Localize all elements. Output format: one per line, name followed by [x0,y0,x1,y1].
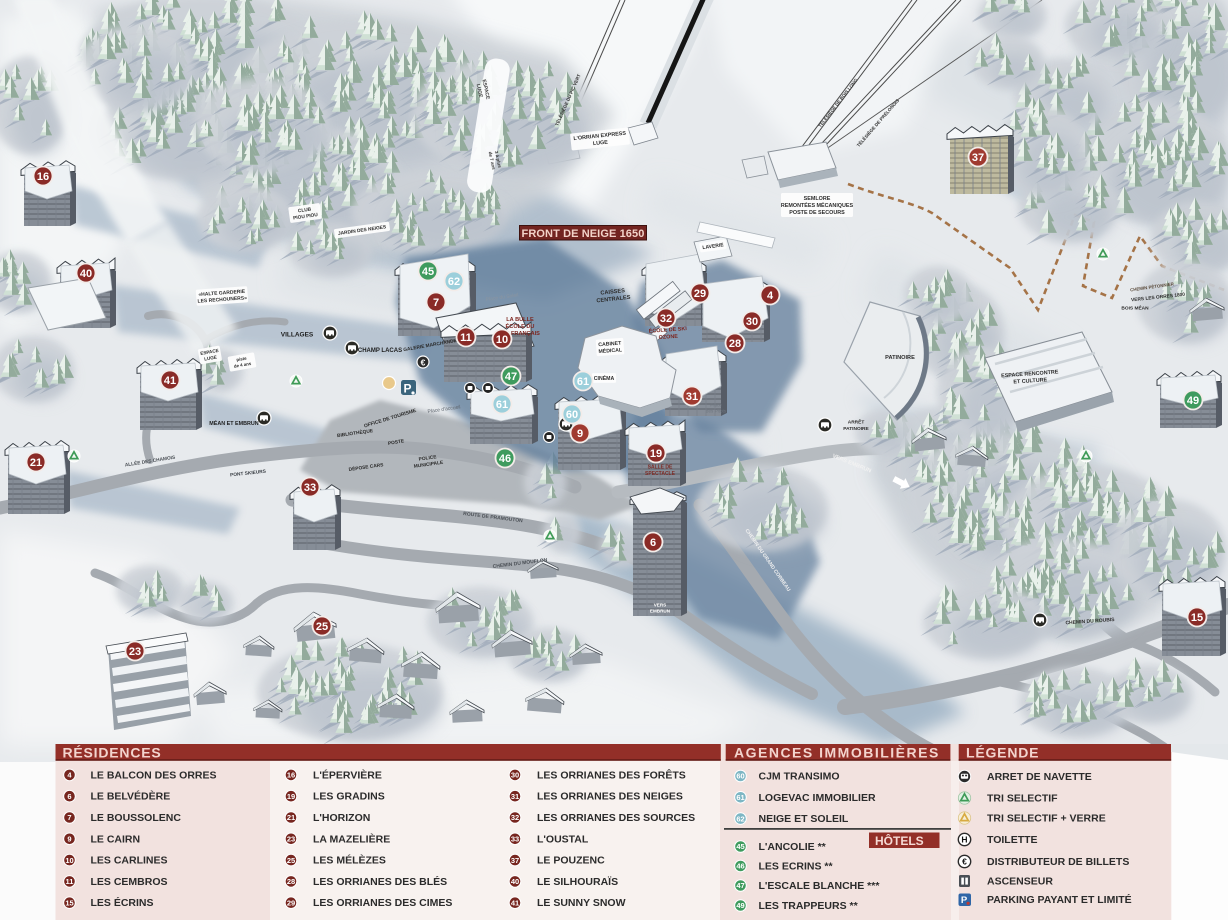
svg-text:REMONTÉES MÉCANIQUES: REMONTÉES MÉCANIQUES [781,201,854,209]
svg-text:P: P [961,895,968,906]
svg-text:30: 30 [511,771,519,780]
svg-text:ASCENSEUR: ASCENSEUR [987,876,1053,888]
svg-text:L'ESCALE BLANCHE ***: L'ESCALE BLANCHE *** [759,880,881,892]
svg-text:61: 61 [577,376,589,388]
svg-text:60: 60 [736,772,744,781]
svg-text:4: 4 [767,290,774,302]
svg-text:LA BULLE: LA BULLE [506,317,534,323]
svg-text:25: 25 [316,621,328,633]
svg-text:LE SUNNY SNOW: LE SUNNY SNOW [537,897,626,909]
svg-text:19: 19 [287,792,295,801]
svg-text:9: 9 [67,835,71,844]
svg-text:LE BOUSSOLENC: LE BOUSSOLENC [91,812,182,824]
svg-text:SPECTACLE: SPECTACLE [645,471,676,477]
svg-text:60: 60 [566,409,578,421]
svg-text:32: 32 [511,813,519,822]
svg-text:LOGEVAC IMMOBILIER: LOGEVAC IMMOBILIER [759,792,876,804]
svg-text:33: 33 [511,835,519,844]
svg-text:LES ÉCRINS: LES ÉCRINS [91,896,154,909]
svg-text:EMBRUN: EMBRUN [650,609,671,614]
svg-text:28: 28 [729,338,741,350]
svg-text:€: € [421,358,426,368]
svg-text:16: 16 [37,171,49,183]
svg-text:PATINOIRE: PATINOIRE [843,426,869,432]
svg-text:LE POUZENC: LE POUZENC [537,855,605,867]
svg-text:46: 46 [736,862,744,871]
svg-text:31: 31 [511,792,519,801]
svg-text:CINÉMA: CINÉMA [594,374,615,382]
svg-text:TOILETTE: TOILETTE [987,834,1038,846]
svg-text:37: 37 [972,152,984,164]
svg-text:40: 40 [80,268,92,280]
svg-text:SEMLORE: SEMLORE [804,196,831,202]
svg-text:FRONT DE NEIGE 1650: FRONT DE NEIGE 1650 [522,228,645,240]
svg-text:ARRET DE NAVETTE: ARRET DE NAVETTE [987,771,1092,783]
svg-text:P: P [403,382,411,396]
svg-text:31: 31 [686,391,698,403]
svg-text:€: € [962,857,967,867]
svg-text:MÉAN ET EMBRUN: MÉAN ET EMBRUN [209,419,259,427]
svg-text:VERS: VERS [654,602,667,607]
svg-text:45: 45 [422,266,434,278]
svg-text:9: 9 [577,428,583,440]
svg-text:11: 11 [66,877,74,886]
svg-text:30: 30 [746,316,758,328]
svg-text:29: 29 [287,898,295,907]
svg-text:DISTRIBUTEUR DE BILLETS: DISTRIBUTEUR DE BILLETS [987,856,1129,868]
svg-text:L'ANCOLIE **: L'ANCOLIE ** [759,841,827,853]
svg-text:7: 7 [433,297,439,309]
svg-text:LES ORRIANES DES BLÉS: LES ORRIANES DES BLÉS [313,875,447,888]
svg-text:23: 23 [287,835,295,844]
svg-text:LE SILHOURAÏS: LE SILHOURAÏS [537,875,618,888]
svg-text:49: 49 [736,901,744,910]
svg-text:TRI SELECTIF: TRI SELECTIF [987,793,1058,805]
svg-text:LÉGENDE: LÉGENDE [966,745,1039,761]
svg-text:15: 15 [65,898,73,907]
svg-text:25: 25 [287,856,295,865]
svg-text:LES ORRIANES DES NEIGES: LES ORRIANES DES NEIGES [537,791,683,803]
svg-text:47: 47 [505,371,517,383]
svg-text:33: 33 [304,482,316,494]
svg-text:PATINOIRE: PATINOIRE [885,355,915,361]
svg-text:47: 47 [736,881,744,890]
svg-text:28: 28 [287,877,295,886]
svg-text:LES CEMBROS: LES CEMBROS [91,876,168,888]
svg-text:41: 41 [164,375,176,387]
svg-text:LA MAZELIÈRE: LA MAZELIÈRE [313,832,390,845]
svg-text:LES TRAPPEURS **: LES TRAPPEURS ** [759,900,859,912]
svg-text:L'OUSTAL: L'OUSTAL [537,833,589,845]
svg-text:15: 15 [1191,612,1203,624]
svg-text:11: 11 [460,332,472,344]
svg-text:21: 21 [30,457,42,469]
svg-text:62: 62 [736,814,744,823]
svg-text:VILLAGES: VILLAGES [281,331,314,338]
svg-text:H: H [961,835,967,845]
svg-text:LES ECRINS **: LES ECRINS ** [759,861,834,873]
svg-text:37: 37 [511,856,519,865]
svg-text:32: 32 [660,313,672,325]
svg-text:LES CARLINES: LES CARLINES [91,855,168,867]
svg-text:RÉSIDENCES: RÉSIDENCES [63,745,162,761]
svg-text:LES ORRIANES DES SOURCES: LES ORRIANES DES SOURCES [537,812,695,824]
svg-text:CHAMP LACAS: CHAMP LACAS [358,348,402,354]
svg-text:49: 49 [1187,395,1199,407]
svg-text:41: 41 [511,898,519,907]
svg-text:LE BALCON DES ORRES: LE BALCON DES ORRES [91,769,217,781]
svg-text:23: 23 [129,646,141,658]
svg-text:SALLE DE: SALLE DE [648,464,673,470]
svg-text:TRI SELECTIF + VERRE: TRI SELECTIF + VERRE [987,813,1106,825]
svg-text:L'ÉPERVIÈRE: L'ÉPERVIÈRE [313,768,382,781]
svg-text:19: 19 [650,448,662,460]
svg-text:LES GRADINS: LES GRADINS [313,791,385,803]
svg-text:ÉCOLE DU: ÉCOLE DU [506,322,535,330]
svg-text:NEIGE ET SOLEIL: NEIGE ET SOLEIL [759,813,849,825]
svg-text:AGENCES IMMOBILIÈRES: AGENCES IMMOBILIÈRES [734,745,940,761]
svg-text:LES ORRIANES DES FORÊTS: LES ORRIANES DES FORÊTS [537,768,686,781]
svg-text:L'HORIZON: L'HORIZON [313,812,370,824]
svg-text:61: 61 [496,399,508,411]
svg-text:10: 10 [496,334,508,346]
svg-text:Place: Place [710,402,722,407]
svg-text:45: 45 [736,842,744,851]
svg-text:CJM TRANSIMO: CJM TRANSIMO [759,771,840,783]
svg-text:40: 40 [511,877,519,886]
svg-text:29: 29 [694,288,706,300]
svg-text:61: 61 [736,793,744,802]
svg-text:LES ORRIANES DES CIMES: LES ORRIANES DES CIMES [313,897,452,909]
svg-text:6: 6 [67,792,71,801]
svg-text:LES MÉLÈZES: LES MÉLÈZES [313,854,386,867]
svg-text:16: 16 [287,771,295,780]
svg-text:PARKING PAYANT ET LIMITÉ: PARKING PAYANT ET LIMITÉ [987,893,1132,906]
svg-text:LE BELVÉDÈRE: LE BELVÉDÈRE [91,790,171,803]
svg-text:62: 62 [448,276,460,288]
svg-text:des Pitots: des Pitots [706,409,727,414]
svg-text:HÔTELS: HÔTELS [875,833,924,848]
svg-text:LE CAIRN: LE CAIRN [91,833,141,845]
svg-text:6: 6 [650,537,656,549]
svg-text:POSTE DE SECOURS: POSTE DE SECOURS [789,210,845,216]
svg-text:46: 46 [499,453,511,465]
svg-text:21: 21 [287,813,295,822]
svg-text:10: 10 [65,856,73,865]
svg-text:7: 7 [67,813,71,822]
